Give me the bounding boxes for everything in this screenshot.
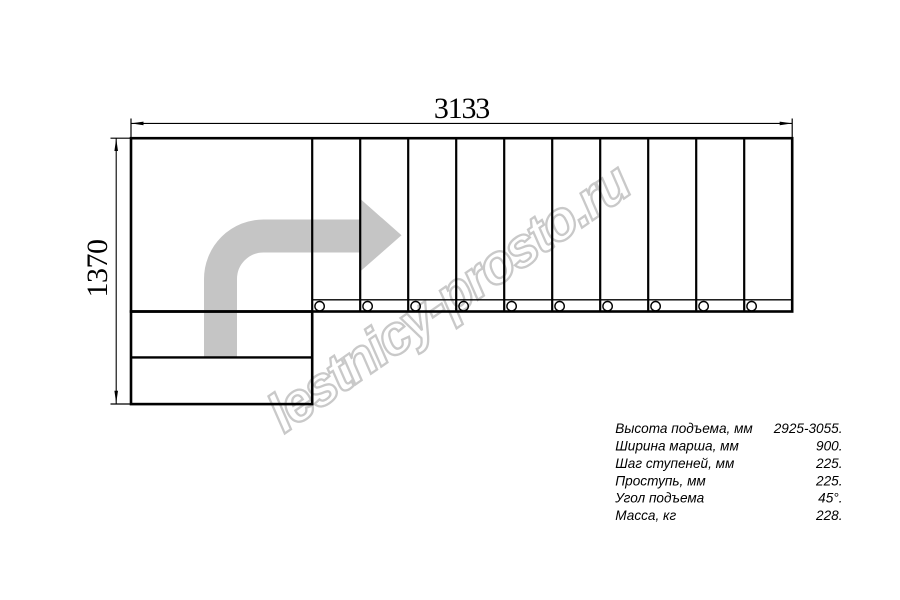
svg-text:Масса, кг: Масса, кг [615,508,676,523]
svg-text:900.: 900. [816,439,842,454]
svg-text:Ширина марша, мм: Ширина марша, мм [615,439,739,454]
svg-text:Шаг ступеней, мм: Шаг ступеней, мм [615,456,735,471]
svg-text:1370: 1370 [81,240,114,298]
svg-text:Высота подъема, мм: Высота подъема, мм [615,421,753,436]
svg-text:Угол подъема: Угол подъема [614,491,704,506]
svg-text:2925-3055.: 2925-3055. [773,421,843,436]
svg-text:225.: 225. [815,456,842,471]
svg-text:225.: 225. [815,473,842,488]
svg-text:3133: 3133 [434,92,489,125]
svg-text:Проступь, мм: Проступь, мм [615,473,706,488]
svg-text:228.: 228. [815,508,842,523]
svg-text:45°.: 45°. [818,491,842,506]
